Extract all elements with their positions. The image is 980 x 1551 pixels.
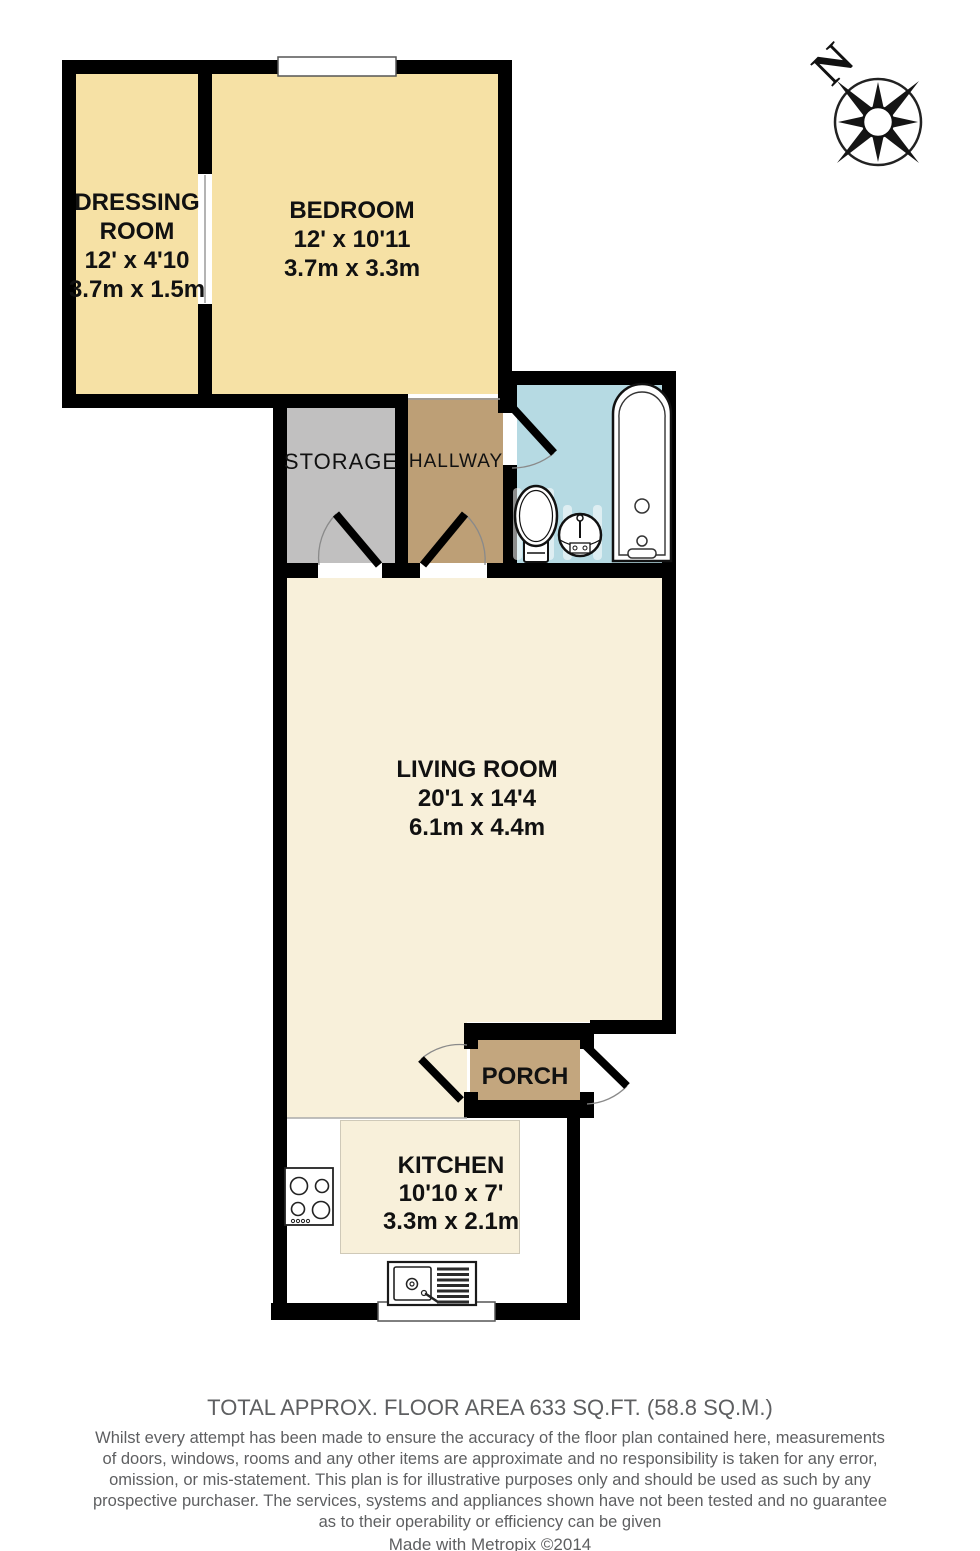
bedroom-dims-imperial: 12' x 10'11 — [242, 225, 462, 254]
bedroom-window — [278, 57, 396, 76]
hallway-door-arc — [465, 514, 485, 565]
storage-door-arc — [319, 514, 336, 565]
hallway-door-leaf — [423, 514, 465, 565]
basin-icon — [559, 514, 601, 556]
dressing-room-dims-imperial: 12' x 4'10 — [62, 246, 212, 275]
living-room-dims-metric: 6.1m x 4.4m — [367, 813, 587, 842]
kitchen-dims-metric: 3.3m x 2.1m — [340, 1208, 562, 1236]
hob-icon — [285, 1168, 333, 1225]
disclaimer-line: of doors, windows, rooms and any other i… — [0, 1449, 980, 1470]
hallway-label: HALLWAY — [404, 451, 508, 473]
living-room-label: LIVING ROOM 20'1 x 14'4 6.1m x 4.4m — [367, 755, 587, 842]
porch-exterior-door-leaf — [586, 1046, 627, 1086]
compass-rose-icon: N — [802, 33, 921, 165]
disclaimer-line: prospective purchaser. The services, sys… — [0, 1491, 980, 1512]
total-floor-area: TOTAL APPROX. FLOOR AREA 633 SQ.FT. (58.… — [0, 1394, 980, 1422]
porch-exterior-door-arc — [587, 1086, 627, 1104]
disclaimer-line: Whilst every attempt has been made to en… — [0, 1428, 980, 1449]
kitchen-sink-icon — [388, 1262, 476, 1305]
kitchen-dims-imperial: 10'10 x 7' — [340, 1180, 562, 1208]
dressing-room-dims-metric: 3.7m x 1.5m — [62, 275, 212, 304]
porch-label: PORCH — [470, 1062, 580, 1091]
bedroom-dims-metric: 3.7m x 3.3m — [242, 254, 462, 283]
kitchen-label: KITCHEN 10'10 x 7' 3.3m x 2.1m — [340, 1152, 562, 1236]
bedroom-label: BEDROOM 12' x 10'11 3.7m x 3.3m — [242, 196, 462, 283]
storage-door-leaf — [336, 514, 379, 565]
disclaimer-line: omission, or mis-statement. This plan is… — [0, 1470, 980, 1491]
living-room-dims-imperial: 20'1 x 14'4 — [367, 784, 587, 813]
bathroom-door-leaf — [512, 407, 554, 453]
disclaimer-line: as to their operability or efficiency ca… — [0, 1512, 980, 1533]
storage-label: STORAGE — [283, 449, 399, 475]
footer: TOTAL APPROX. FLOOR AREA 633 SQ.FT. (58.… — [0, 1394, 980, 1551]
floorplan-canvas: N DRESSING ROOM 12' x 4'10 3.7m x 1.5m B… — [0, 0, 980, 1551]
bathtub-icon — [613, 384, 671, 561]
dressing-room-label: DRESSING ROOM 12' x 4'10 3.7m x 1.5m — [62, 188, 212, 304]
metropix-credit: Made with Metropix ©2014 — [0, 1534, 980, 1551]
porch-inner-door-arc — [421, 1045, 467, 1059]
bathroom-door-arc — [512, 453, 554, 468]
porch-inner-door-leaf — [421, 1059, 461, 1100]
